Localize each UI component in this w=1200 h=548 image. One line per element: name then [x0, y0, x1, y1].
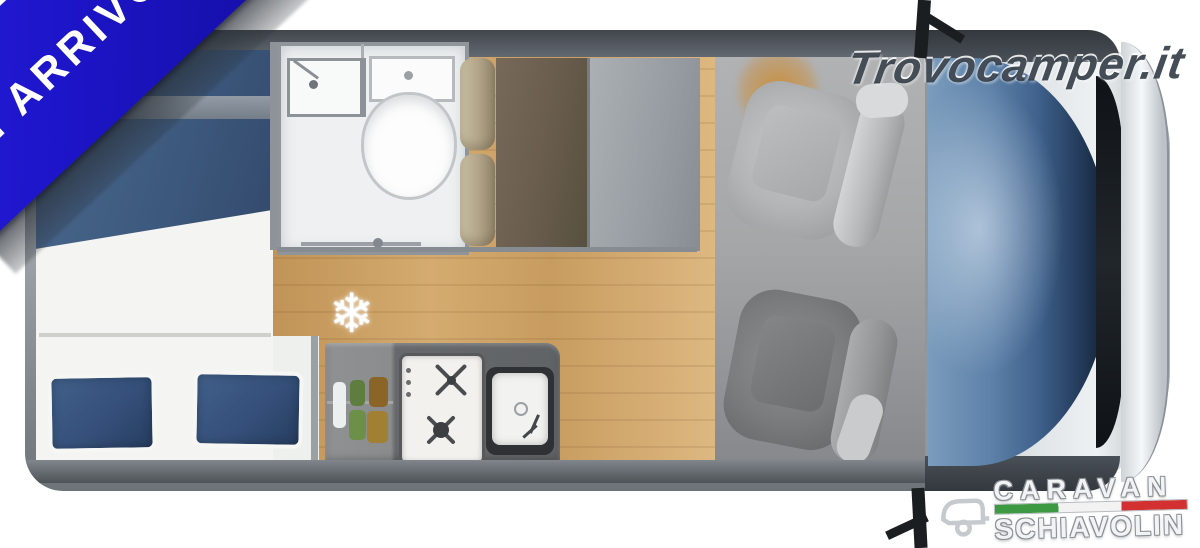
sink-faucet-dot [309, 80, 318, 89]
bed-sheet-seam [39, 333, 271, 337]
pillow-right [192, 370, 303, 449]
gas-hob [399, 353, 485, 465]
wall-under-bathroom [277, 247, 697, 252]
site-watermark: Trovocamper.it [843, 37, 1188, 95]
bed-frame-edge [311, 336, 318, 462]
caravan-trailer-icon [935, 486, 990, 541]
swivel-seat-passenger [716, 278, 913, 475]
dealer-name-line2: SCHIAVOLIN [994, 509, 1185, 546]
bottle-green-2 [349, 410, 366, 440]
bottle-green-1 [350, 380, 365, 406]
bathroom-door-line [301, 242, 421, 246]
pillow-left [47, 373, 156, 453]
wardrobe-panel [587, 58, 700, 251]
toilet-flush-button [404, 71, 413, 80]
wiper-cowl-band [1096, 76, 1123, 448]
sink-drain [514, 402, 528, 416]
bench-cushion-bottom [460, 154, 495, 246]
bench-cushion-top [460, 58, 495, 150]
toilet-bowl [361, 92, 457, 200]
hood-bumper [1121, 42, 1169, 482]
bottle-amber-1 [369, 377, 388, 407]
dinette-bench [496, 58, 587, 248]
bottle-white [333, 382, 346, 428]
fridge-snowflake-icon: ❄ [329, 282, 374, 345]
dealer-logo: CARAVAN SCHIAVOLIN [935, 471, 1199, 548]
listing-photo: ❄ IN ARRIVO Trovocamper.it CARAVAN SCHI [0, 0, 1200, 548]
van-wall-bottom [25, 460, 960, 483]
bottle-amber-2 [367, 411, 388, 443]
